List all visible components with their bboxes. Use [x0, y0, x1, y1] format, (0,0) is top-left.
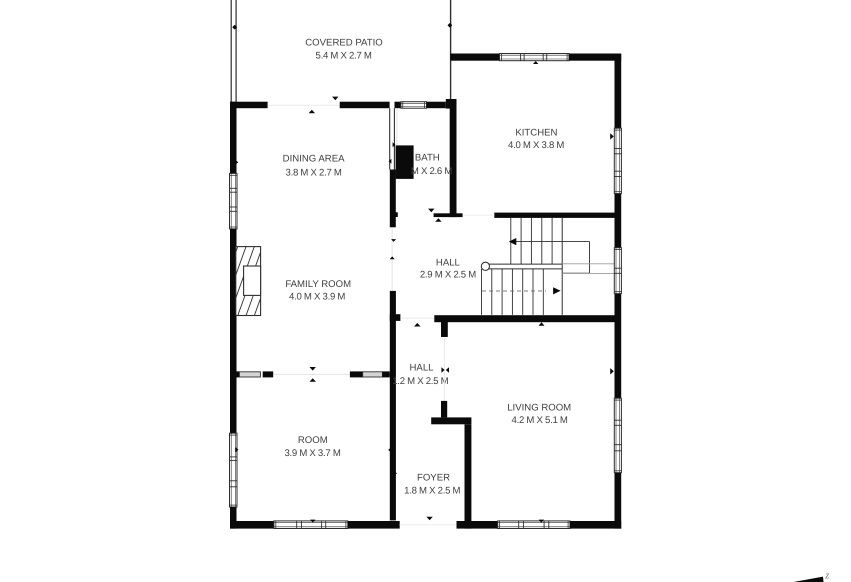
svg-text:2.9 M X 2.5 M: 2.9 M X 2.5 M	[420, 270, 476, 281]
svg-text:1.8 M X 2.5 M: 1.8 M X 2.5 M	[404, 486, 460, 497]
svg-text:LIVING ROOM: LIVING ROOM	[507, 403, 571, 414]
svg-text:COVERED PATIO: COVERED PATIO	[305, 37, 382, 48]
svg-text:4.2 M X 5.1 M: 4.2 M X 5.1 M	[512, 415, 568, 426]
svg-text:HALL: HALL	[436, 257, 461, 268]
svg-text:5.4 M X 2.7 M: 5.4 M X 2.7 M	[316, 50, 372, 61]
svg-text:3.8 M X 2.7 M: 3.8 M X 2.7 M	[286, 167, 342, 178]
svg-text:M X 2.6 M: M X 2.6 M	[411, 166, 452, 177]
svg-text:3.9 M X 3.7 M: 3.9 M X 3.7 M	[284, 448, 340, 459]
svg-text:HALL: HALL	[410, 363, 435, 374]
svg-text:BATH: BATH	[415, 153, 440, 164]
svg-text:ROOM: ROOM	[298, 435, 328, 446]
svg-text:4.0 M X 3.9 M: 4.0 M X 3.9 M	[289, 291, 345, 302]
svg-text:KITCHEN: KITCHEN	[515, 128, 557, 139]
svg-text:z: z	[824, 571, 829, 582]
svg-text:4.0 M X 3.8 M: 4.0 M X 3.8 M	[508, 140, 564, 151]
svg-text:FAMILY ROOM: FAMILY ROOM	[285, 279, 351, 290]
svg-text:1.2 M X 2.5 M: 1.2 M X 2.5 M	[392, 376, 448, 387]
svg-text:FOYER: FOYER	[417, 473, 450, 484]
svg-text:DINING AREA: DINING AREA	[283, 154, 345, 165]
